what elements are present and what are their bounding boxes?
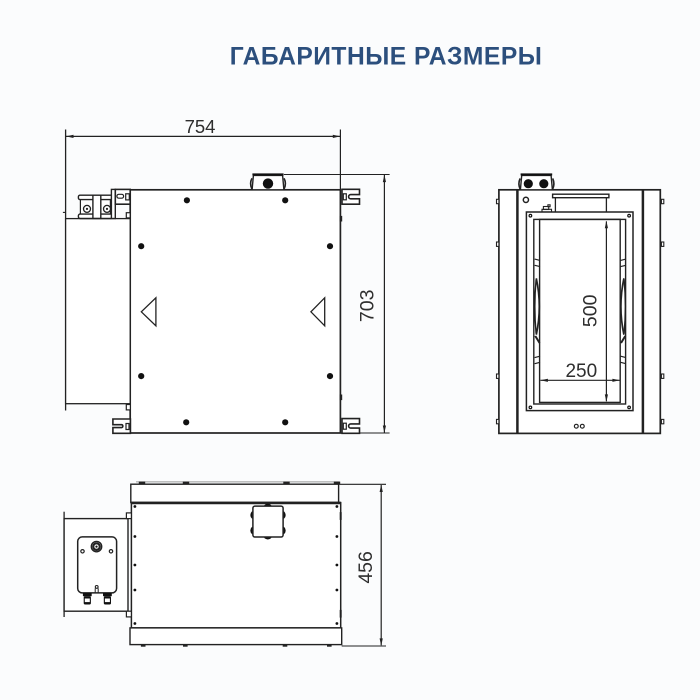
svg-text:703: 703 — [356, 290, 378, 323]
svg-text:500: 500 — [580, 294, 602, 327]
svg-text:ГАБАРИТНЫЕ РАЗМЕРЫ: ГАБАРИТНЫЕ РАЗМЕРЫ — [230, 43, 543, 70]
svg-text:754: 754 — [185, 116, 216, 137]
svg-text:456: 456 — [355, 551, 377, 584]
svg-text:250: 250 — [565, 361, 597, 382]
